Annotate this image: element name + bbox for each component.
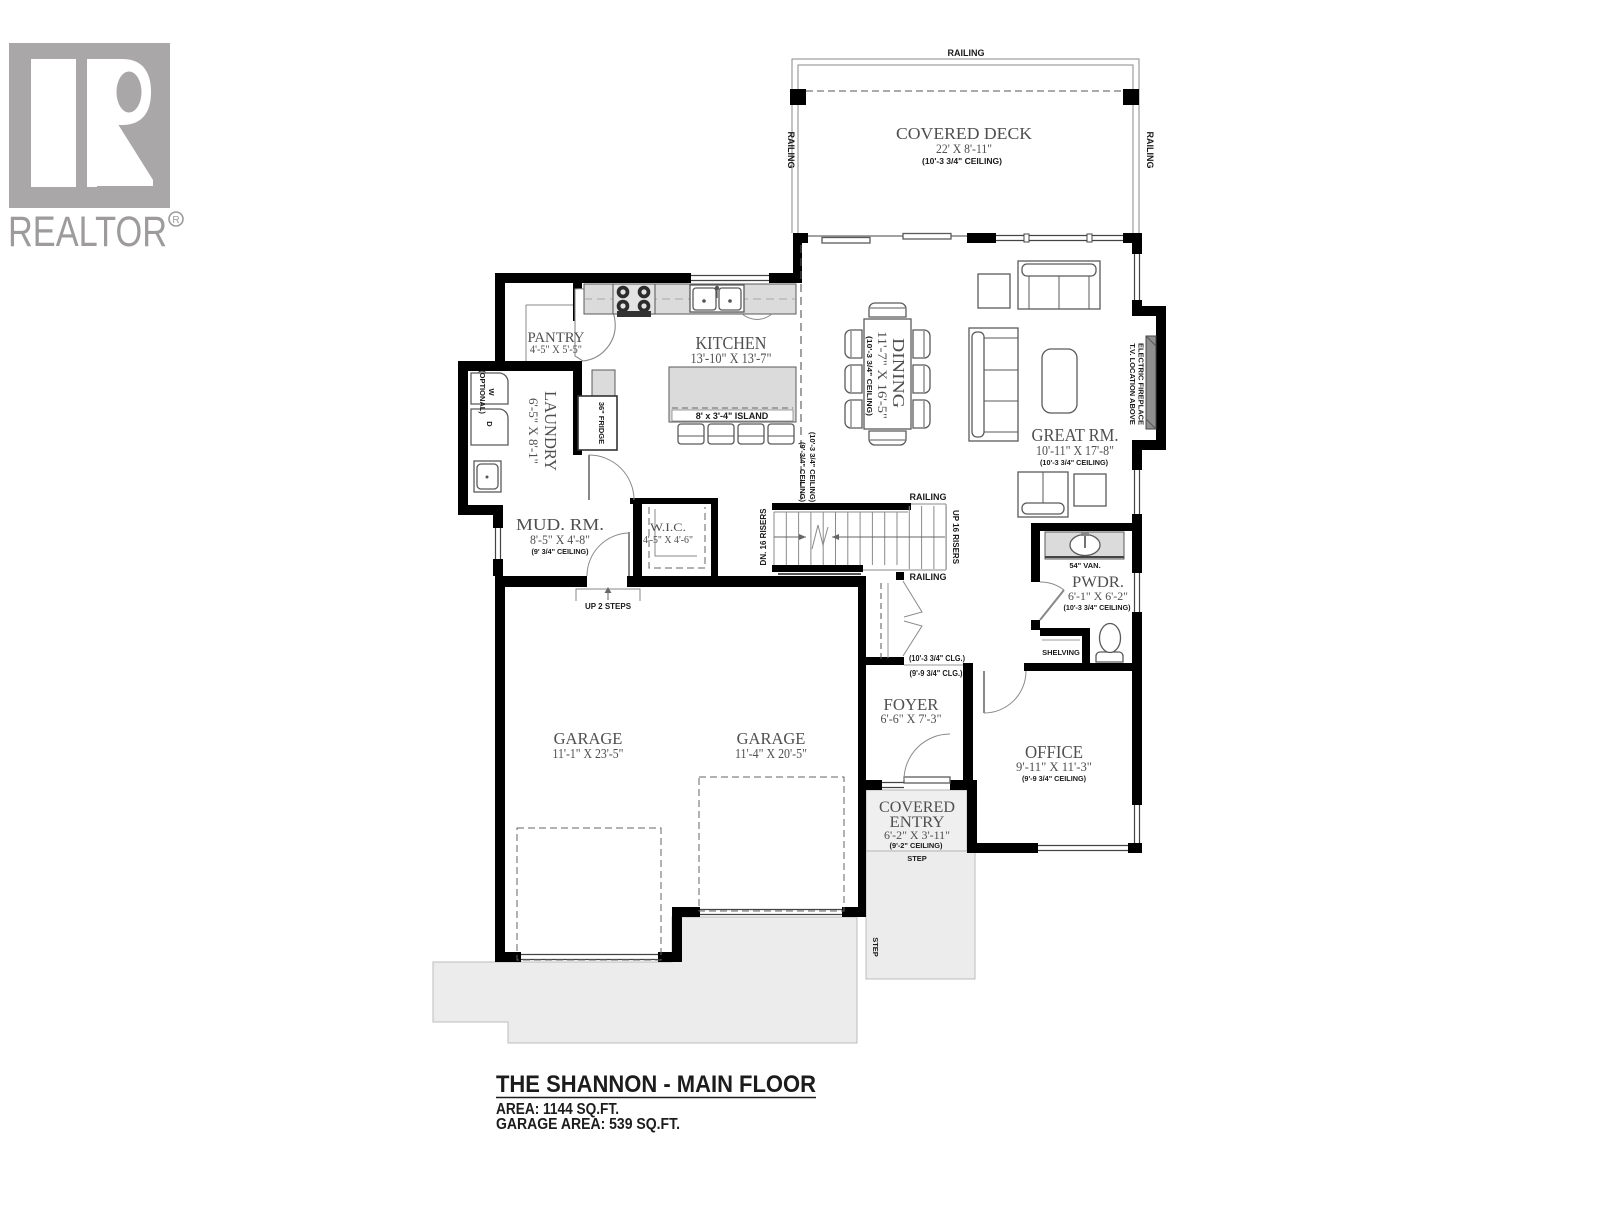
svg-text:STEP: STEP xyxy=(871,937,880,957)
svg-text:GREAT RM.: GREAT RM. xyxy=(1032,425,1119,445)
svg-text:(9'-9 3/4" CLG.): (9'-9 3/4" CLG.) xyxy=(910,669,963,678)
svg-text:(10'-3 3/4" CEILING): (10'-3 3/4" CEILING) xyxy=(1064,603,1131,612)
svg-text:UP 2 STEPS: UP 2 STEPS xyxy=(585,602,632,611)
svg-text:ENTRY: ENTRY xyxy=(890,814,945,831)
svg-text:8' x 3'-4" ISLAND: 8' x 3'-4" ISLAND xyxy=(696,411,769,421)
svg-text:PWDR.: PWDR. xyxy=(1072,574,1124,591)
svg-text:6'-5" X 8'-1": 6'-5" X 8'-1" xyxy=(526,398,540,464)
svg-text:(10'-3 3/4" CEILING): (10'-3 3/4" CEILING) xyxy=(865,336,874,417)
svg-text:THE SHANNON - MAIN FLOOR: THE SHANNON - MAIN FLOOR xyxy=(496,1071,816,1098)
svg-text:DN. 16 RISERS: DN. 16 RISERS xyxy=(759,508,768,566)
svg-text:11'-4" X 20'-5": 11'-4" X 20'-5" xyxy=(735,746,807,761)
svg-text:(9'-3/4" CEILING): (9'-3/4" CEILING) xyxy=(798,442,807,502)
svg-text:RAILING: RAILING xyxy=(786,132,796,169)
svg-text:R: R xyxy=(172,215,179,226)
svg-text:13'-10" X 13'-7": 13'-10" X 13'-7" xyxy=(691,351,772,367)
svg-text:MUD. RM.: MUD. RM. xyxy=(516,515,604,534)
svg-text:W: W xyxy=(487,388,496,396)
svg-text:4'-5" X 5'-5": 4'-5" X 5'-5" xyxy=(530,344,582,356)
svg-text:11'-1" X 23'-5": 11'-1" X 23'-5" xyxy=(553,746,624,761)
svg-text:(9'-9 3/4" CEILING): (9'-9 3/4" CEILING) xyxy=(1022,774,1086,783)
svg-text:D: D xyxy=(485,421,494,427)
svg-text:(10'-3 3/4" CEILING): (10'-3 3/4" CEILING) xyxy=(922,157,1002,166)
svg-text:10'-11" X 17'-8": 10'-11" X 17'-8" xyxy=(1036,443,1114,458)
svg-text:4'-5" X 4'-6": 4'-5" X 4'-6" xyxy=(643,535,693,546)
svg-text:DINING: DINING xyxy=(889,338,908,408)
svg-text:STEP: STEP xyxy=(907,854,927,863)
svg-text:(10'-3 3/4" CEILING): (10'-3 3/4" CEILING) xyxy=(808,432,817,503)
svg-text:LAUNDRY: LAUNDRY xyxy=(541,391,560,471)
svg-text:9'-11" X 11'-3": 9'-11" X 11'-3" xyxy=(1016,759,1092,774)
svg-text:REALTOR: REALTOR xyxy=(8,208,167,256)
svg-text:6'-1" X 6'-2": 6'-1" X 6'-2" xyxy=(1068,591,1128,603)
svg-text:W.I.C.: W.I.C. xyxy=(650,522,686,534)
svg-text:RAILING: RAILING xyxy=(948,48,985,58)
svg-text:(10'-3 3/4" CEILING): (10'-3 3/4" CEILING) xyxy=(1040,458,1108,467)
svg-text:(9'-2" CEILING): (9'-2" CEILING) xyxy=(890,841,943,850)
svg-text:11'-7" X 16'-5": 11'-7" X 16'-5" xyxy=(875,331,889,419)
svg-text:6'-6" X 7'-3": 6'-6" X 7'-3" xyxy=(881,712,942,726)
svg-text:(10'-3 3/4" CLG.): (10'-3 3/4" CLG.) xyxy=(909,654,965,663)
svg-text:KITCHEN: KITCHEN xyxy=(696,333,767,353)
svg-text:(OPTIONAL): (OPTIONAL) xyxy=(478,370,487,414)
svg-text:GARAGE AREA: 539 SQ.FT.: GARAGE AREA: 539 SQ.FT. xyxy=(496,1116,680,1133)
svg-text:RAILING: RAILING xyxy=(910,572,947,582)
svg-text:UP 16 RISERS: UP 16 RISERS xyxy=(951,510,960,565)
svg-text:T.V. LOCATION ABOVE: T.V. LOCATION ABOVE xyxy=(1128,343,1137,424)
svg-text:22' X 8'-11": 22' X 8'-11" xyxy=(936,141,992,156)
svg-text:RAILING: RAILING xyxy=(910,492,947,502)
svg-text:8'-5" X 4'-8": 8'-5" X 4'-8" xyxy=(530,533,590,547)
svg-text:(9' 3/4" CEILING): (9' 3/4" CEILING) xyxy=(532,547,589,556)
svg-text:RAILING: RAILING xyxy=(1145,132,1155,169)
svg-text:54" VAN.: 54" VAN. xyxy=(1069,561,1100,570)
svg-text:SHELVING: SHELVING xyxy=(1042,648,1080,657)
svg-text:36" FRIDGE: 36" FRIDGE xyxy=(597,402,606,444)
